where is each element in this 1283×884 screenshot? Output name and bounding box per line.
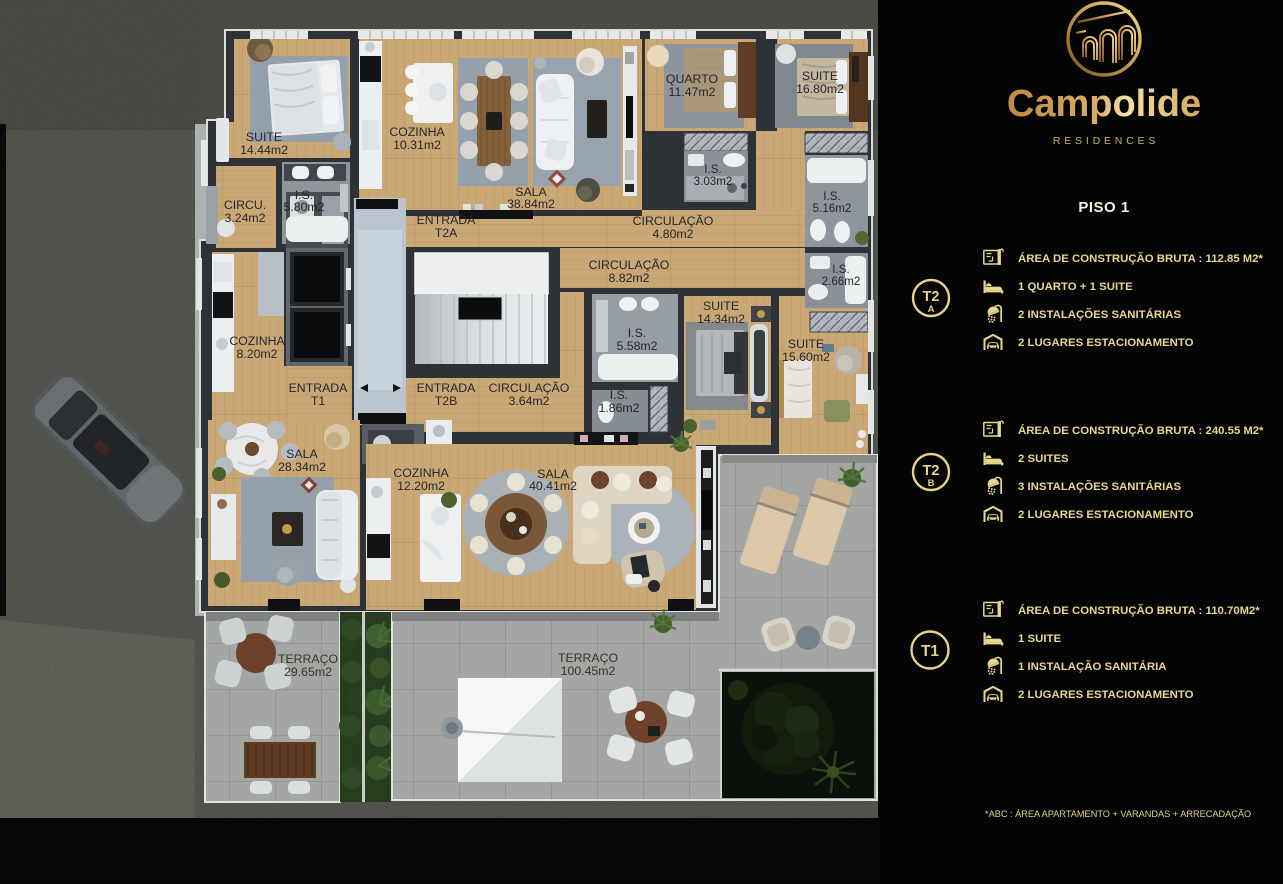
- svg-text:SUITE: SUITE: [703, 299, 739, 313]
- svg-text:TERRAÇO: TERRAÇO: [278, 652, 338, 666]
- svg-text:T2: T2: [923, 289, 940, 305]
- svg-text:PISO 1: PISO 1: [1078, 199, 1129, 216]
- svg-text:Campolide: Campolide: [1007, 83, 1201, 125]
- svg-text:38.84m2: 38.84m2: [507, 197, 555, 211]
- svg-text:SUITE: SUITE: [246, 130, 282, 144]
- svg-text:T1: T1: [921, 643, 939, 660]
- svg-text:ENTRADA: ENTRADA: [289, 381, 349, 395]
- svg-text:10.31m2: 10.31m2: [393, 138, 441, 152]
- svg-text:ÁREA DE CONSTRUÇÃO BRUTA : 11: ÁREA DE CONSTRUÇÃO BRUTA : 110.70M2*: [1018, 604, 1260, 617]
- svg-text:3.03m2: 3.03m2: [694, 175, 733, 188]
- svg-text:1 INSTALAÇÃO SANITÁRIA: 1 INSTALAÇÃO SANITÁRIA: [1018, 660, 1167, 673]
- svg-text:1 SUITE: 1 SUITE: [1018, 633, 1061, 645]
- svg-text:ENTRADA: ENTRADA: [417, 213, 477, 227]
- svg-text:T2A: T2A: [435, 226, 458, 240]
- svg-text:2 SUITES: 2 SUITES: [1018, 453, 1069, 465]
- svg-text:T1: T1: [311, 394, 326, 408]
- svg-text:CIRCULAÇÃO: CIRCULAÇÃO: [589, 258, 670, 272]
- svg-text:3 INSTALAÇÕES SANITÁRIAS: 3 INSTALAÇÕES SANITÁRIAS: [1018, 480, 1181, 493]
- svg-text:5.80m2: 5.80m2: [283, 200, 324, 214]
- svg-text:CIRCULAÇÃO: CIRCULAÇÃO: [633, 214, 714, 228]
- svg-text:12.20m2: 12.20m2: [397, 479, 445, 493]
- svg-text:2 LUGARES ESTACIONAMENTO: 2 LUGARES ESTACIONAMENTO: [1018, 689, 1194, 701]
- svg-text:3.24m2: 3.24m2: [224, 211, 265, 225]
- svg-text:CIRCULAÇÃO: CIRCULAÇÃO: [489, 381, 570, 395]
- svg-text:28.34m2: 28.34m2: [278, 460, 326, 474]
- svg-text:*ABC : ÁREA APARTAMENTO + VAR: *ABC : ÁREA APARTAMENTO + VARANDAS + ARR…: [985, 809, 1251, 819]
- svg-text:8.82m2: 8.82m2: [608, 271, 649, 285]
- svg-text:ÁREA DE CONSTRUÇÃO BRUTA : 11: ÁREA DE CONSTRUÇÃO BRUTA : 112.85 M2*: [1018, 252, 1263, 265]
- svg-text:COZINHA: COZINHA: [229, 334, 285, 348]
- svg-text:A: A: [928, 304, 935, 315]
- svg-text:16.80m2: 16.80m2: [796, 82, 844, 96]
- svg-text:QUARTO: QUARTO: [666, 72, 718, 86]
- svg-text:5.16m2: 5.16m2: [813, 202, 852, 215]
- svg-text:T2B: T2B: [435, 394, 458, 408]
- svg-text:I.S.: I.S.: [628, 326, 646, 340]
- svg-text:I.S.: I.S.: [610, 388, 628, 402]
- svg-text:15.60m2: 15.60m2: [782, 350, 830, 364]
- svg-text:29.65m2: 29.65m2: [284, 665, 332, 679]
- svg-text:4.80m2: 4.80m2: [652, 227, 693, 241]
- svg-text:1 QUARTO + 1 SUITE: 1 QUARTO + 1 SUITE: [1018, 281, 1133, 293]
- svg-text:40.41m2: 40.41m2: [529, 479, 577, 493]
- svg-text:COZINHA: COZINHA: [389, 125, 445, 139]
- svg-text:5.58m2: 5.58m2: [616, 339, 657, 353]
- svg-text:TERRAÇO: TERRAÇO: [558, 651, 618, 665]
- svg-text:ENTRADA: ENTRADA: [417, 381, 477, 395]
- svg-text:T2: T2: [923, 463, 940, 479]
- svg-text:1.86m2: 1.86m2: [598, 401, 639, 415]
- svg-text:100.45m2: 100.45m2: [561, 664, 616, 678]
- svg-text:COZINHA: COZINHA: [393, 466, 449, 480]
- svg-text:SUITE: SUITE: [788, 337, 824, 351]
- svg-text:2.66m2: 2.66m2: [822, 275, 861, 288]
- svg-text:2 LUGARES ESTACIONAMENTO: 2 LUGARES ESTACIONAMENTO: [1018, 337, 1194, 349]
- svg-text:14.34m2: 14.34m2: [697, 312, 745, 326]
- svg-text:14.44m2: 14.44m2: [240, 143, 288, 157]
- svg-text:11.47m2: 11.47m2: [669, 85, 716, 99]
- svg-text:RESIDENCES: RESIDENCES: [1053, 135, 1159, 147]
- svg-text:B: B: [928, 478, 935, 489]
- svg-text:3.64m2: 3.64m2: [508, 394, 549, 408]
- svg-text:SUITE: SUITE: [802, 69, 838, 83]
- svg-text:CIRCU.: CIRCU.: [224, 198, 266, 212]
- svg-text:8.20m2: 8.20m2: [236, 347, 277, 361]
- svg-text:2 INSTALAÇÕES SANITÁRIAS: 2 INSTALAÇÕES SANITÁRIAS: [1018, 308, 1181, 321]
- svg-text:ÁREA DE CONSTRUÇÃO BRUTA : 24: ÁREA DE CONSTRUÇÃO BRUTA : 240.55 M2*: [1018, 424, 1264, 437]
- svg-text:2 LUGARES ESTACIONAMENTO: 2 LUGARES ESTACIONAMENTO: [1018, 509, 1194, 521]
- svg-text:SALA: SALA: [286, 447, 318, 461]
